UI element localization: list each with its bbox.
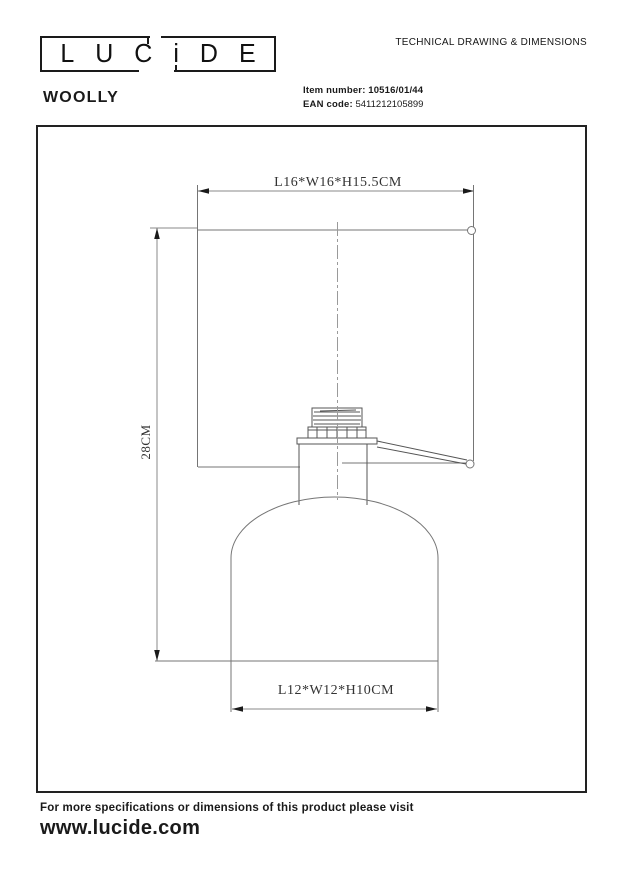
footer: For more specifications or dimensions of…: [40, 802, 414, 840]
dimension-height: [150, 228, 197, 661]
dimension-label-height: 28CM: [138, 424, 154, 459]
footer-note: For more specifications or dimensions of…: [40, 802, 414, 814]
dimension-label-base: L12*W12*H10CM: [264, 683, 408, 699]
shade-ring-bottom: [466, 460, 474, 468]
dimension-label-shade: L16*W16*H15.5CM: [266, 175, 410, 191]
item-number-row: Item number: 10516/01/44: [303, 84, 423, 98]
lamp-shade: [198, 185, 476, 468]
lamp-socket: [297, 408, 467, 505]
item-number-label: Item number:: [303, 85, 366, 96]
ean-code-label: EAN code:: [303, 99, 353, 110]
logo-frame-gap: [150, 35, 161, 39]
ean-code-row: EAN code: 5411212105899: [303, 98, 423, 112]
logo-letter: L: [60, 41, 74, 67]
lucide-logo: L U C i D E: [40, 36, 276, 72]
technical-drawing-sheet: L U C i D E TECHNICAL DRAWING & DIMENSIO…: [0, 0, 620, 877]
product-meta: Item number: 10516/01/44 EAN code: 54112…: [303, 84, 423, 112]
drawing-frame: L16*W16*H15.5CM 28CM L12*W12*H10CM: [36, 125, 587, 793]
document-title: TECHNICAL DRAWING & DIMENSIONS: [395, 37, 587, 48]
logo-frame-tick: [175, 65, 177, 72]
shade-ring-top: [468, 227, 476, 235]
logo-letter: C: [134, 41, 152, 67]
logo-frame-tick: [147, 36, 149, 44]
logo-letter: E: [239, 41, 256, 67]
product-name: WOOLLY: [43, 89, 119, 107]
shade-arm: [377, 447, 466, 464]
logo-letter: D: [200, 41, 218, 67]
ean-code-value: 5411212105899: [355, 99, 423, 110]
shade-arm: [377, 441, 467, 460]
item-number-value: 10516/01/44: [368, 85, 423, 96]
logo-letter: U: [95, 41, 113, 67]
logo-frame-gap: [139, 69, 174, 73]
logo-letter: i: [173, 41, 179, 67]
lamp-base: [155, 497, 438, 712]
dimension-base: [232, 706, 437, 712]
footer-website: www.lucide.com: [40, 817, 414, 840]
